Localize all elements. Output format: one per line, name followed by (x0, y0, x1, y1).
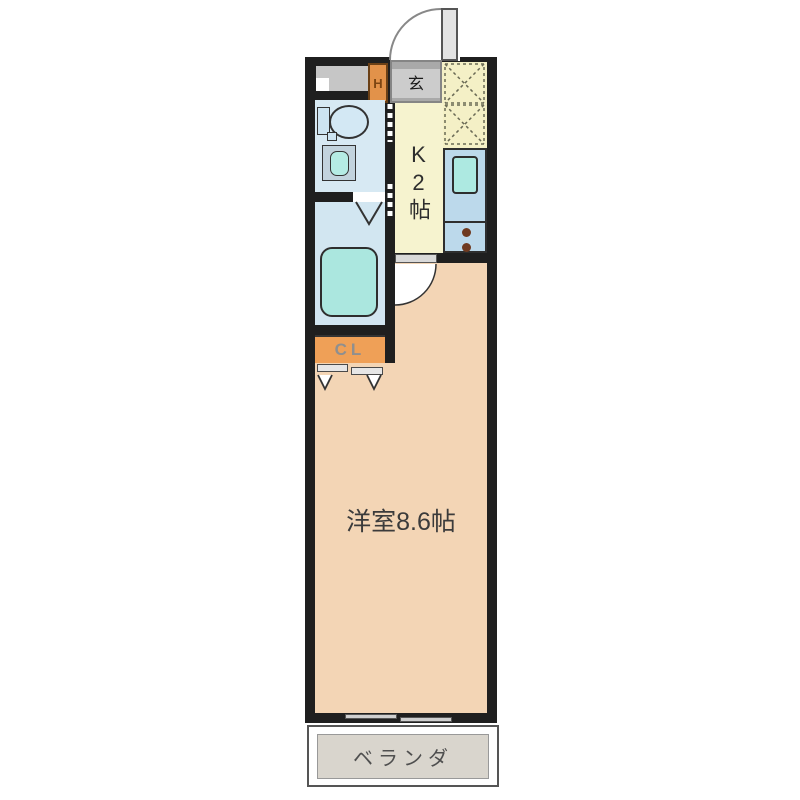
closet-sliding-door (351, 367, 383, 375)
entrance-door (441, 8, 458, 61)
veranda-label: ベランダ (353, 742, 453, 771)
room-door (395, 254, 437, 263)
closet-sliding-door (317, 364, 348, 372)
western-room-floor (395, 263, 487, 713)
entrance-hall-label: 玄 (408, 70, 424, 94)
water-heater-label: H (373, 76, 382, 91)
washbasin-bowl (330, 151, 349, 176)
floorplan-canvas: H 玄 K2帖 洋室8.6帖 CL ベランダ (0, 0, 800, 800)
kitchen-label: K2帖 (393, 136, 443, 228)
entrance-tile-floor (442, 62, 487, 148)
window-pane (400, 717, 452, 722)
bathtub (320, 247, 378, 317)
veranda-floor: ベランダ (317, 734, 489, 779)
entrance-door-arc (390, 9, 441, 60)
gas-burner-icon (462, 228, 471, 237)
water-heater-box: H (368, 63, 388, 103)
kitchen-sink (452, 156, 478, 194)
closet-box: CL (315, 335, 385, 363)
entrance-hall-mat: 玄 (390, 60, 442, 103)
closet-label: CL (335, 340, 366, 360)
gas-burner-icon (462, 243, 471, 252)
window-pane (345, 714, 397, 719)
bathroom-door-gap (353, 192, 385, 202)
shoe-step-notch (316, 78, 329, 91)
western-room-label: 洋室8.6帖 (315, 505, 487, 539)
toilet-flush-handle (327, 132, 337, 141)
counter-divider (443, 221, 487, 223)
